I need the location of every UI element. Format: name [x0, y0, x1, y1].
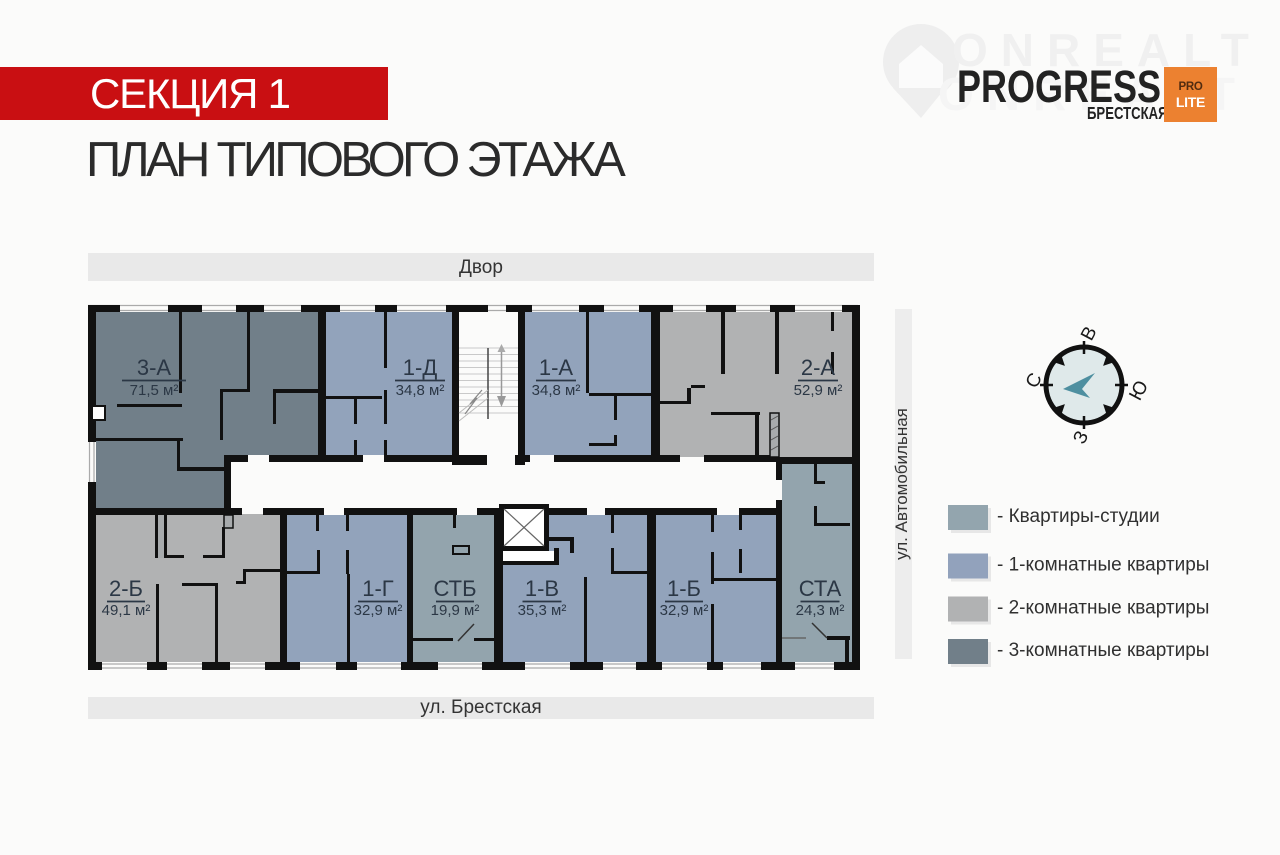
- svg-text:32,9 м²: 32,9 м²: [660, 602, 709, 619]
- svg-text:35,3 м²: 35,3 м²: [518, 602, 567, 619]
- svg-text:3-А: 3-А: [137, 355, 172, 380]
- svg-text:1-Г: 1-Г: [362, 576, 394, 601]
- svg-text:В: В: [1077, 323, 1101, 344]
- svg-text:32,9 м²: 32,9 м²: [354, 602, 403, 619]
- svg-text:1-А: 1-А: [539, 355, 574, 380]
- svg-text:- 3-комнатные квартиры: - 3-комнатные квартиры: [997, 640, 1209, 661]
- svg-text:24,3 м²: 24,3 м²: [796, 602, 845, 619]
- svg-text:- Квартиры-студии: - Квартиры-студии: [997, 506, 1160, 527]
- svg-text:С: С: [1022, 370, 1047, 392]
- svg-text:2-Б: 2-Б: [109, 576, 143, 601]
- svg-text:Ю: Ю: [1126, 377, 1154, 404]
- svg-text:1-Д: 1-Д: [403, 355, 438, 380]
- svg-text:ул. Автомобильная: ул. Автомобильная: [892, 408, 911, 560]
- svg-text:34,8 м²: 34,8 м²: [532, 382, 581, 399]
- svg-text:СТБ: СТБ: [433, 576, 476, 601]
- svg-text:2-А: 2-А: [801, 355, 836, 380]
- svg-text:ул. Брестская: ул. Брестская: [420, 697, 541, 718]
- svg-text:- 2-комнатные квартиры: - 2-комнатные квартиры: [997, 598, 1209, 619]
- svg-text:34,8 м²: 34,8 м²: [396, 382, 445, 399]
- svg-text:49,1 м²: 49,1 м²: [102, 602, 151, 619]
- svg-text:71,5 м²: 71,5 м²: [130, 382, 179, 399]
- svg-text:З: З: [1069, 428, 1093, 448]
- svg-text:1-Б: 1-Б: [667, 576, 701, 601]
- svg-text:1-В: 1-В: [525, 576, 559, 601]
- svg-text:Двор: Двор: [459, 257, 503, 278]
- svg-text:СТА: СТА: [799, 576, 842, 601]
- svg-text:19,9 м²: 19,9 м²: [431, 602, 480, 619]
- svg-text:52,9 м²: 52,9 м²: [794, 382, 843, 399]
- svg-text:- 1-комнатные квартиры: - 1-комнатные квартиры: [997, 555, 1209, 576]
